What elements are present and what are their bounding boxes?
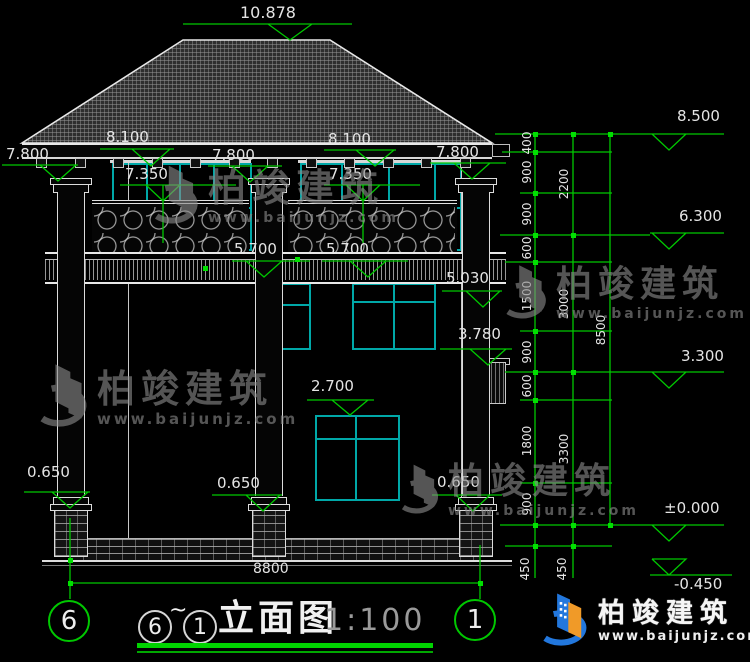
- dim-label-d8800: 8800: [253, 562, 289, 576]
- dim-label-r6300: 6.300: [679, 209, 722, 224]
- axis-bubble-6: 6: [48, 600, 90, 642]
- title-axis-circle-1: 1: [183, 610, 217, 644]
- dim-label-l7800a: 7.800: [6, 147, 49, 162]
- dim-label-l7800b: 7.800: [212, 148, 255, 163]
- title-underline-2: [137, 651, 433, 653]
- dim-label-c2200: 2200: [558, 169, 570, 200]
- dim-label-l7800c: 7.800: [436, 145, 479, 160]
- title-underline: [137, 643, 433, 648]
- dim-label-l0650b: 0.650: [217, 476, 260, 491]
- dim-label-l2700: 2.700: [311, 379, 354, 394]
- dim-label-l7350a: 7.350: [125, 167, 168, 182]
- cad-elevation-drawing: 6 1 6 ~ 1 立面图 1:100 10.8788.1008.1007.80…: [0, 0, 750, 662]
- dim-label-r8500: 8.500: [677, 109, 720, 124]
- dim-label-c1800: 1800: [521, 426, 533, 457]
- title-axis-circle-6: 6: [138, 610, 172, 644]
- drawing-title: 立面图: [218, 601, 338, 637]
- dim-label-l5700a: 5.700: [234, 242, 277, 257]
- dim-label-c3000: 3000: [558, 289, 570, 320]
- dim-label-r3300: 3.300: [681, 349, 724, 364]
- drawing-scale: 1:100: [324, 606, 425, 636]
- dim-label-c600a: 600: [521, 237, 533, 260]
- dim-label-r0000: ±0.000: [664, 501, 720, 516]
- dim-label-c600b: 600: [521, 375, 533, 398]
- dim-label-l3780: 3.780: [458, 327, 501, 342]
- dim-label-c900c: 900: [521, 341, 533, 364]
- brand-logo-name: 柏竣建筑: [598, 600, 750, 627]
- brand-logo-url: www.baijunjz.com: [598, 630, 750, 643]
- dim-label-l5030: 5.030: [446, 271, 489, 286]
- dim-label-l0650a: 0.650: [27, 465, 70, 480]
- dim-label-ridge: 10.878: [240, 5, 296, 21]
- axis-bubble-1: 1: [454, 599, 496, 641]
- brand-logo: 柏竣建筑 www.baijunjz.com: [538, 590, 750, 652]
- dim-label-l0650c: 0.650: [437, 475, 480, 490]
- dim-label-c3300: 3300: [558, 434, 570, 465]
- dim-label-l8100a: 8.100: [106, 130, 149, 145]
- dim-label-c450a: 450: [519, 558, 531, 581]
- dim-label-l8100b: 8.100: [328, 132, 371, 147]
- dim-label-c900d: 900: [521, 493, 533, 516]
- dim-label-c8500: 8500: [595, 315, 607, 346]
- dimension-linework: [0, 0, 750, 662]
- dim-label-c900b: 900: [521, 203, 533, 226]
- brand-logo-icon: [538, 590, 590, 652]
- dim-label-c400: 400: [521, 132, 533, 155]
- dim-label-c1500: 1500: [521, 281, 533, 312]
- dim-label-c450b: 450: [556, 558, 568, 581]
- dim-label-l7350b: 7.350: [329, 167, 372, 182]
- dim-label-l5700b: 5.700: [326, 242, 369, 257]
- dim-label-c900a: 900: [521, 161, 533, 184]
